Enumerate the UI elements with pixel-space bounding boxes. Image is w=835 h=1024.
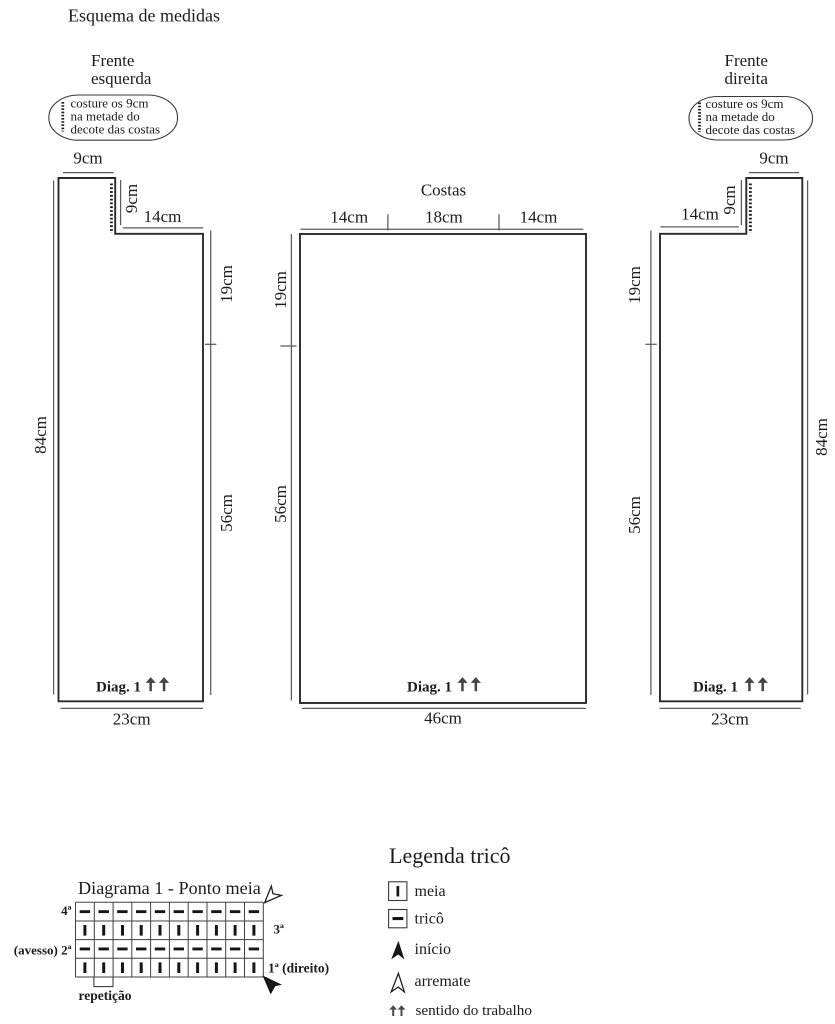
svg-text:19cm: 19cm — [271, 271, 290, 309]
svg-text:56cm: 56cm — [217, 494, 236, 532]
svg-text:(avesso) 2ª: (avesso) 2ª — [14, 943, 72, 958]
svg-text:9cm: 9cm — [73, 149, 102, 168]
svg-text:9cm: 9cm — [720, 185, 739, 214]
svg-text:início: início — [415, 941, 451, 958]
svg-text:56cm: 56cm — [625, 496, 644, 534]
svg-text:arremate: arremate — [415, 973, 471, 990]
svg-text:9cm: 9cm — [759, 149, 788, 168]
svg-text:repetição: repetição — [79, 988, 132, 1003]
svg-text:Frente: Frente — [91, 51, 134, 70]
svg-text:Legenda tricô: Legenda tricô — [389, 843, 511, 868]
svg-text:9cm: 9cm — [122, 184, 141, 213]
svg-text:meia: meia — [415, 883, 446, 900]
svg-text:46cm: 46cm — [424, 709, 462, 728]
svg-text:Diagrama 1 - Ponto meia: Diagrama 1 - Ponto meia — [78, 878, 261, 898]
svg-text:19cm: 19cm — [625, 266, 644, 304]
svg-text:84cm: 84cm — [812, 418, 831, 456]
svg-text:Diag. 1: Diag. 1 — [96, 680, 141, 696]
svg-text:23cm: 23cm — [113, 710, 151, 729]
svg-text:14cm: 14cm — [330, 207, 368, 226]
svg-text:84cm: 84cm — [31, 416, 50, 454]
svg-text:18cm: 18cm — [425, 207, 463, 226]
svg-text:23cm: 23cm — [711, 710, 749, 729]
svg-text:sentido do trabalho: sentido do trabalho — [416, 1002, 533, 1019]
svg-text:Diag. 1: Diag. 1 — [407, 680, 452, 696]
svg-text:Esquema de medidas: Esquema de medidas — [68, 6, 220, 26]
svg-text:esquerda: esquerda — [91, 69, 152, 88]
svg-text:19cm: 19cm — [217, 265, 236, 303]
svg-text:3ª: 3ª — [274, 922, 285, 937]
svg-text:14cm: 14cm — [681, 205, 719, 224]
svg-text:tricô: tricô — [415, 911, 444, 928]
svg-text:14cm: 14cm — [144, 207, 182, 226]
svg-text:direita: direita — [725, 69, 769, 88]
svg-text:4ª: 4ª — [61, 903, 72, 918]
svg-text:Costas: Costas — [421, 181, 466, 200]
svg-text:1ª (direito): 1ª (direito) — [268, 961, 329, 976]
svg-text:decote das costas: decote das costas — [71, 121, 161, 136]
svg-text:56cm: 56cm — [271, 485, 290, 523]
svg-text:Diag. 1: Diag. 1 — [693, 680, 738, 696]
svg-text:14cm: 14cm — [520, 207, 558, 226]
svg-text:Frente: Frente — [725, 51, 768, 70]
svg-text:decote das costas: decote das costas — [706, 122, 796, 137]
